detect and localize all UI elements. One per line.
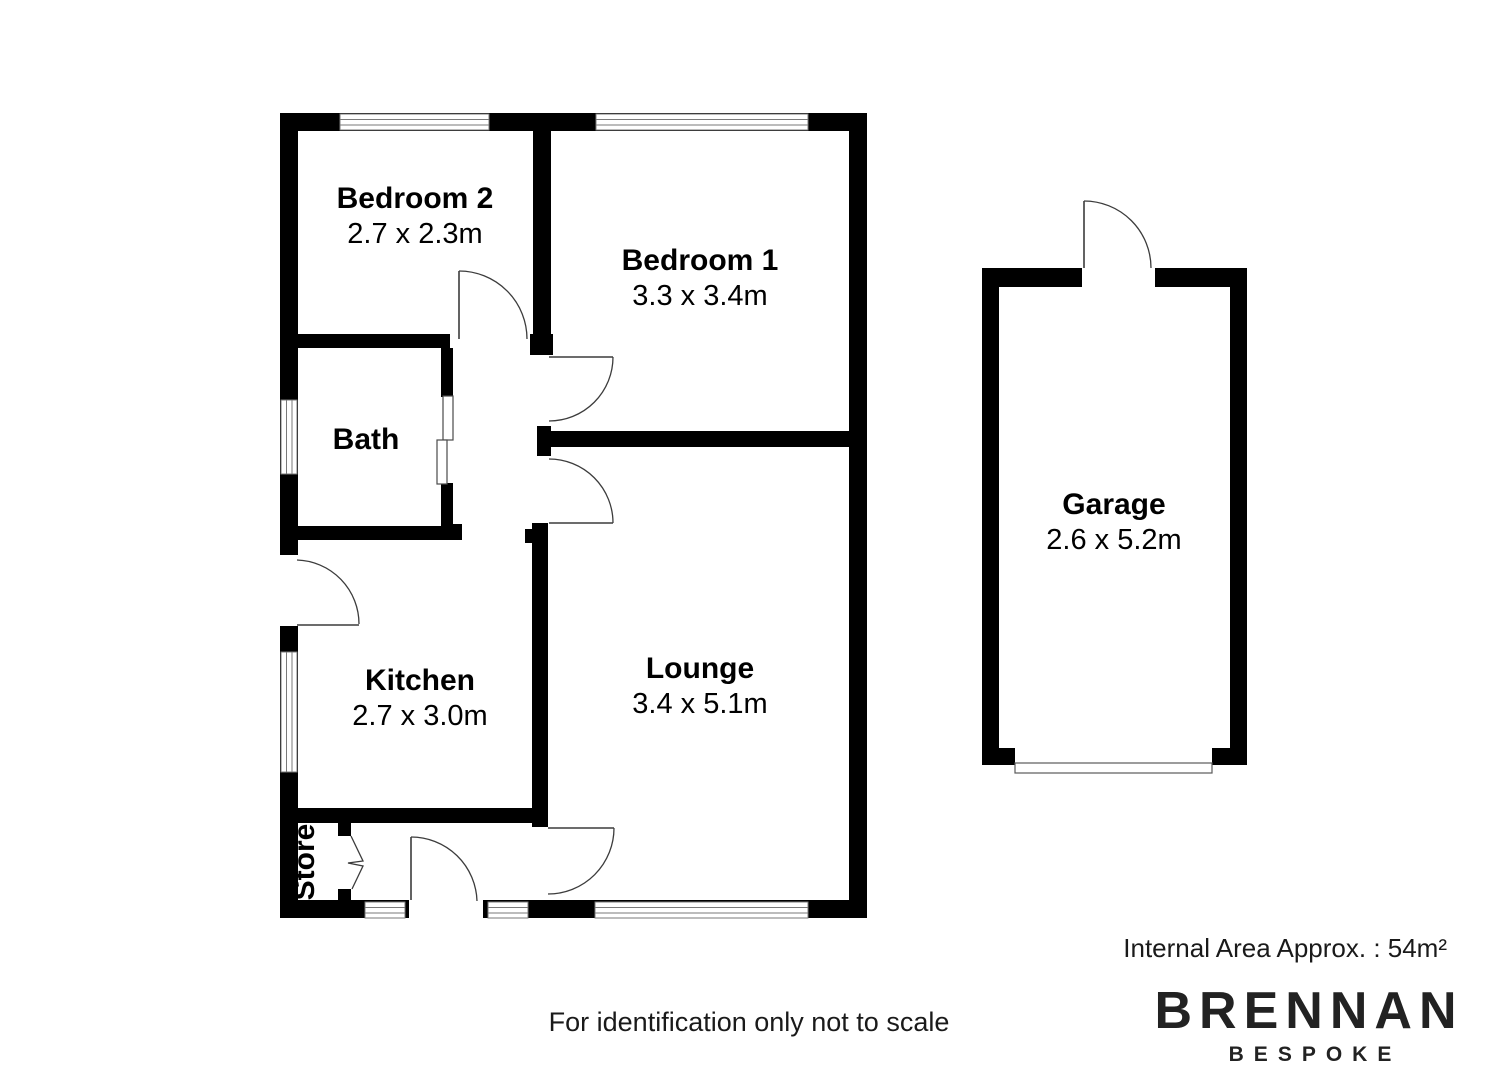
door-lounge-upper (549, 459, 613, 523)
window (340, 114, 489, 130)
front-door-gap (409, 900, 483, 918)
disclaimer-note: For identification only not to scale (549, 1007, 950, 1037)
door-front-entrance (411, 837, 477, 901)
brand-tagline: BESPOKE (1229, 1043, 1402, 1066)
garage-structure (982, 201, 1247, 773)
internal-area-note: Internal Area Approx. : 54m² (1123, 933, 1447, 963)
floorplan-page: Bedroom 2 2.7 x 2.3m Bedroom 1 3.3 x 3.4… (0, 0, 1492, 1080)
window (365, 902, 405, 918)
window (488, 902, 528, 918)
room-label-bedroom2: Bedroom 2 (337, 182, 494, 215)
window (281, 652, 297, 772)
door-bath-slider (437, 396, 453, 484)
window (596, 114, 808, 130)
room-dims-lounge: 3.4 x 5.1m (632, 688, 767, 720)
room-label-bedroom1: Bedroom 1 (622, 244, 779, 277)
garage-door-gap (1082, 268, 1155, 287)
room-label-garage: Garage (1062, 488, 1165, 521)
room-dims-bedroom1: 3.3 x 3.4m (632, 280, 767, 312)
kitchen-door-gap (280, 555, 298, 626)
room-label-lounge: Lounge (646, 652, 754, 685)
door-bedroom2 (459, 271, 527, 339)
door-store-bifold (348, 836, 363, 889)
garage-vehicle-door (1015, 763, 1212, 773)
room-label-kitchen: Kitchen (365, 664, 475, 697)
room-label-store: Store (288, 824, 321, 901)
room-dims-bedroom2: 2.7 x 2.3m (347, 218, 482, 250)
floorplan-canvas: Bedroom 2 2.7 x 2.3m Bedroom 1 3.3 x 3.4… (0, 0, 1492, 1080)
door-garage-pedestrian (1084, 201, 1151, 268)
brand-name: BRENNAN (1155, 982, 1464, 1040)
door-lounge-lower (548, 828, 614, 894)
room-dims-garage: 2.6 x 5.2m (1046, 524, 1181, 556)
door-bedroom1 (549, 357, 613, 421)
room-label-bath: Bath (333, 423, 400, 456)
door-kitchen-exterior (297, 560, 359, 625)
window (595, 902, 808, 918)
brennan-bespoke-logo: BRENNAN BESPOKE (1155, 982, 1464, 1066)
window (281, 400, 297, 474)
room-dims-kitchen: 2.7 x 3.0m (352, 700, 487, 732)
room-labels: Bedroom 2 2.7 x 2.3m Bedroom 1 3.3 x 3.4… (288, 182, 1182, 900)
